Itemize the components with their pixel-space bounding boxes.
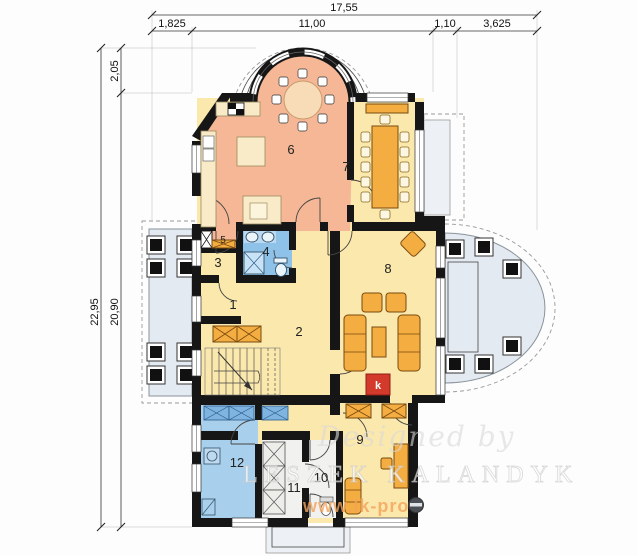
dim-left-outer: 22,95 bbox=[89, 298, 101, 326]
watermark-designed-by: Designed by bbox=[317, 420, 515, 453]
room-label-7: 7 bbox=[342, 159, 349, 174]
left-terrace bbox=[142, 221, 199, 403]
room-label-8: 8 bbox=[384, 261, 391, 276]
window bbox=[192, 145, 201, 173]
room-label-5: 5 bbox=[220, 235, 226, 246]
watermark-author: LESZEK KALANDYK bbox=[243, 462, 579, 488]
sink-bowl bbox=[203, 149, 214, 161]
armchair bbox=[362, 293, 382, 312]
room-label-1: 1 bbox=[229, 297, 236, 312]
kitchen-island bbox=[237, 137, 265, 166]
dim-total-width: 17,55 bbox=[330, 2, 358, 14]
window bbox=[192, 240, 201, 266]
chimney-shaft bbox=[228, 103, 244, 115]
sofa bbox=[398, 315, 420, 371]
window bbox=[436, 346, 445, 395]
window bbox=[192, 464, 201, 492]
window bbox=[232, 518, 268, 527]
right-terrace-semicircle bbox=[445, 224, 555, 392]
dim-left-inner: 20,90 bbox=[109, 298, 121, 326]
room-label-4: 4 bbox=[262, 244, 269, 259]
shaft-x-box bbox=[201, 231, 212, 248]
wardrobe-x-box bbox=[237, 326, 261, 342]
watermark-badge bbox=[409, 498, 424, 513]
side-terrace-top-right bbox=[424, 114, 464, 220]
washing-machine bbox=[204, 448, 220, 464]
fireplace-label: k bbox=[375, 380, 382, 392]
cabinet-x-box-blue bbox=[262, 406, 288, 420]
room-label-6: 6 bbox=[287, 142, 294, 157]
sink-bowl bbox=[203, 136, 214, 148]
window bbox=[415, 130, 424, 212]
dim-seg-1: 1,825 bbox=[158, 18, 186, 30]
window bbox=[345, 518, 408, 527]
window bbox=[192, 425, 201, 452]
terrace-door bbox=[436, 246, 445, 268]
dining-table bbox=[372, 126, 398, 208]
sideboard bbox=[366, 104, 408, 113]
armchair bbox=[386, 293, 406, 312]
dim-seg-4: 3,625 bbox=[483, 18, 511, 30]
watermark-website: www.lk-pro bbox=[302, 496, 409, 516]
wardrobe-x-box-gray bbox=[263, 490, 285, 514]
coffee-table bbox=[372, 327, 386, 357]
wardrobe-x-box bbox=[382, 404, 406, 418]
wardrobe-x-box bbox=[213, 326, 237, 342]
room-label-3: 3 bbox=[214, 255, 221, 270]
window bbox=[192, 350, 201, 376]
shower bbox=[244, 252, 264, 274]
fireplace: k bbox=[366, 374, 390, 395]
cabinet-x-box-blue bbox=[229, 406, 254, 420]
entrance-porch bbox=[266, 527, 350, 553]
window bbox=[192, 296, 201, 322]
window bbox=[367, 93, 408, 102]
wardrobe-x-box bbox=[346, 404, 371, 418]
floor-plan-page: k bbox=[0, 0, 638, 556]
dim-left-top: 2,05 bbox=[109, 60, 121, 81]
dim-seg-2: 11,00 bbox=[299, 18, 326, 30]
dim-seg-3: 1,10 bbox=[434, 18, 455, 30]
cabinet-x-box-blue bbox=[204, 406, 229, 420]
room-label-2: 2 bbox=[295, 324, 302, 339]
washbasin bbox=[262, 232, 274, 242]
washbasin bbox=[246, 232, 258, 242]
window bbox=[436, 278, 445, 338]
round-dining-table bbox=[272, 69, 334, 131]
sofa bbox=[344, 315, 366, 371]
floor-plan-canvas: k bbox=[0, 0, 638, 556]
